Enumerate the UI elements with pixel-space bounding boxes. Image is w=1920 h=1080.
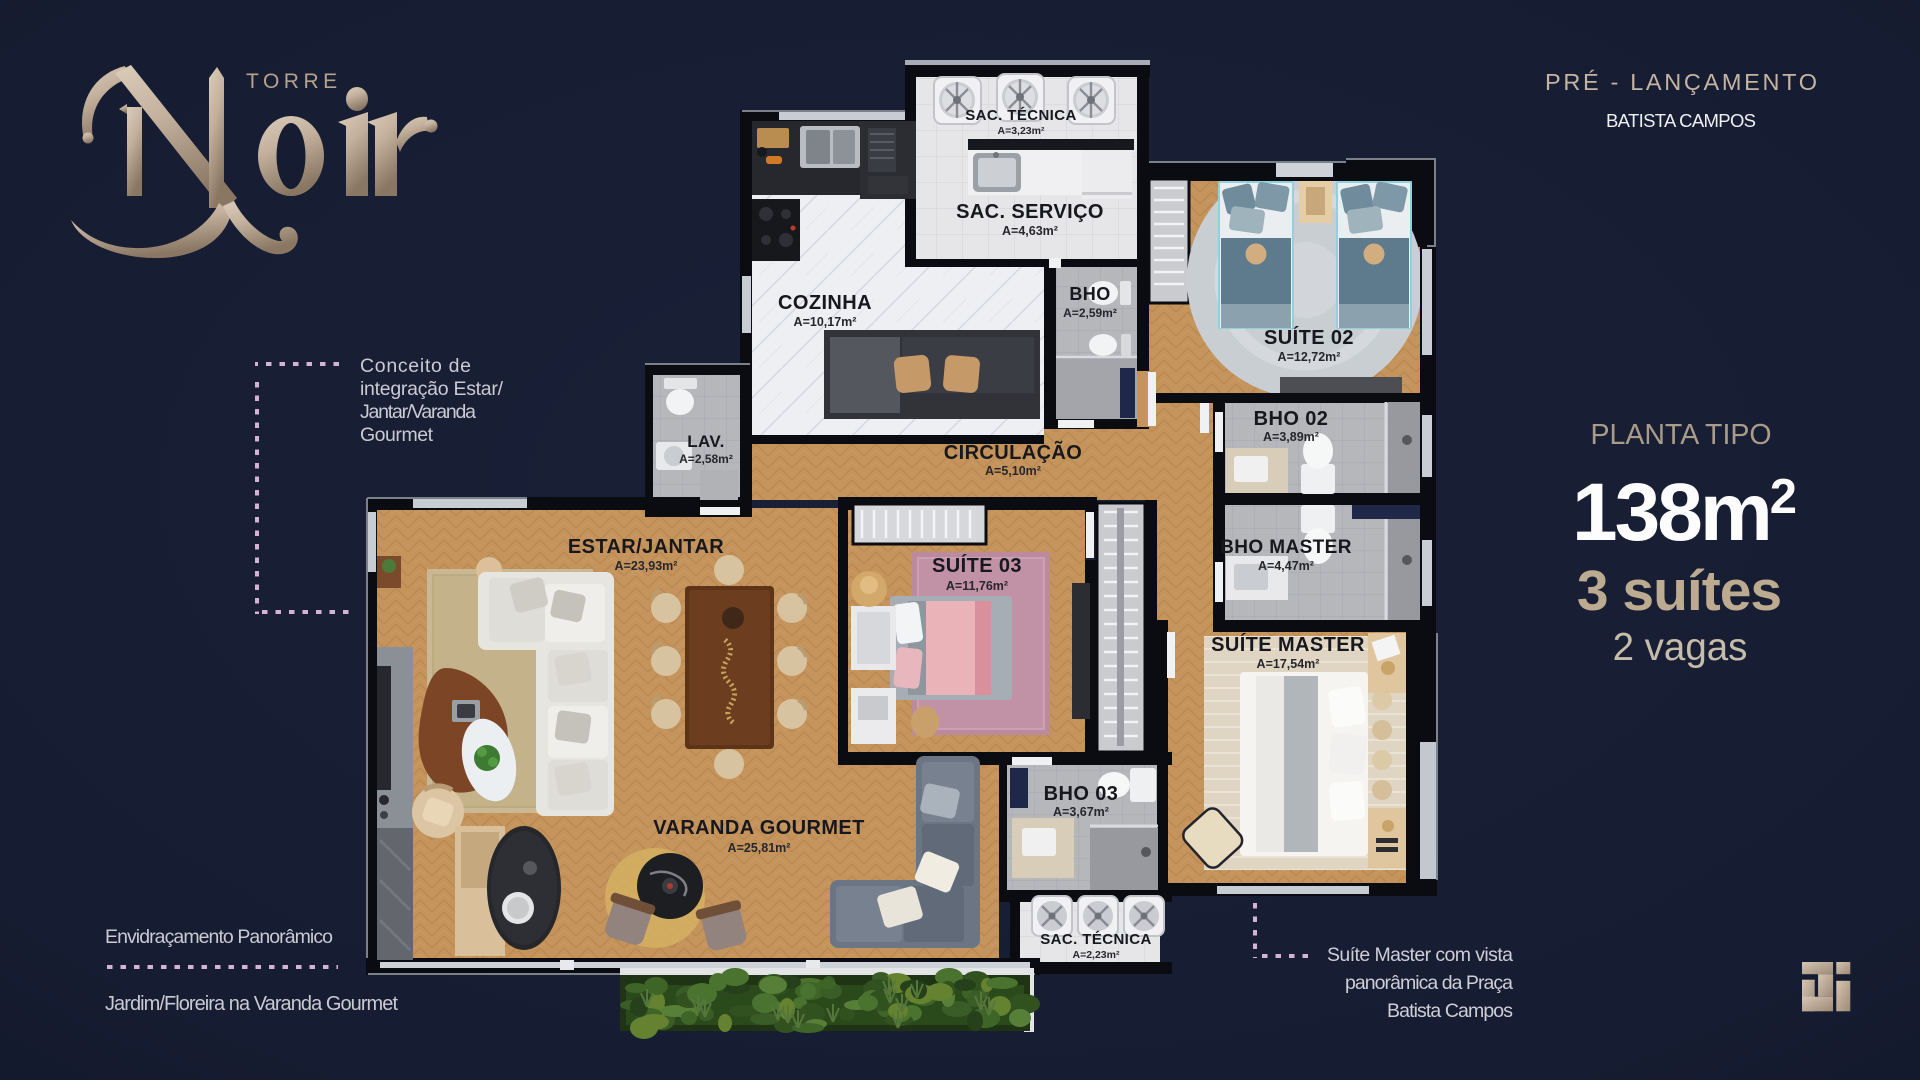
svg-text:A=5,10m²: A=5,10m² bbox=[985, 464, 1041, 478]
svg-text:A=11,76m²: A=11,76m² bbox=[946, 579, 1008, 593]
svg-text:SAC. TÉCNICA: SAC. TÉCNICA bbox=[965, 107, 1076, 124]
svg-text:138m2: 138m2 bbox=[1572, 467, 1796, 558]
svg-text:2 vagas: 2 vagas bbox=[1613, 626, 1748, 669]
svg-text:Envidraçamento Panorâmico: Envidraçamento Panorâmico bbox=[105, 926, 333, 948]
svg-text:A=10,17m²: A=10,17m² bbox=[794, 315, 857, 329]
svg-text:Gourmet: Gourmet bbox=[360, 424, 434, 446]
svg-text:A=17,54m²: A=17,54m² bbox=[1257, 657, 1320, 671]
svg-text:SUÍTE 03: SUÍTE 03 bbox=[932, 554, 1022, 577]
svg-text:SUÍTE 02: SUÍTE 02 bbox=[1264, 326, 1354, 349]
svg-text:A=25,81m²: A=25,81m² bbox=[728, 841, 791, 855]
svg-text:SAC. TÉCNICA: SAC. TÉCNICA bbox=[1040, 931, 1151, 948]
svg-text:A=4,47m²: A=4,47m² bbox=[1258, 559, 1314, 573]
svg-text:Jardim/Floreira na Varanda Gou: Jardim/Floreira na Varanda Gourmet bbox=[105, 993, 398, 1015]
svg-text:3 suítes: 3 suítes bbox=[1577, 559, 1781, 623]
svg-text:VARANDA GOURMET: VARANDA GOURMET bbox=[653, 817, 865, 839]
svg-text:LAV.: LAV. bbox=[687, 432, 725, 451]
svg-text:A=2,59m²: A=2,59m² bbox=[1063, 306, 1117, 320]
svg-text:A=4,63m²: A=4,63m² bbox=[1002, 224, 1058, 238]
svg-text:PRÉ - LANÇAMENTO: PRÉ - LANÇAMENTO bbox=[1545, 69, 1817, 95]
svg-text:Batista Campos: Batista Campos bbox=[1387, 1000, 1513, 1022]
svg-text:BATISTA CAMPOS: BATISTA CAMPOS bbox=[1606, 110, 1756, 131]
svg-text:panorâmica da Praça: panorâmica da Praça bbox=[1345, 972, 1513, 994]
svg-text:Jantar/Varanda: Jantar/Varanda bbox=[360, 401, 476, 423]
svg-text:BHO MASTER: BHO MASTER bbox=[1220, 537, 1352, 558]
svg-text:A=12,72m²: A=12,72m² bbox=[1278, 350, 1341, 364]
svg-text:A=2,58m²: A=2,58m² bbox=[679, 452, 733, 466]
svg-text:CIRCULAÇÃO: CIRCULAÇÃO bbox=[944, 441, 1082, 464]
svg-text:Suíte Master com vista: Suíte Master com vista bbox=[1327, 944, 1513, 966]
svg-text:A=3,67m²: A=3,67m² bbox=[1053, 805, 1109, 819]
svg-text:A=3,23m²: A=3,23m² bbox=[998, 125, 1045, 137]
svg-text:Conceito de: Conceito de bbox=[360, 355, 471, 377]
svg-text:COZINHA: COZINHA bbox=[778, 292, 872, 314]
svg-text:A=23,93m²: A=23,93m² bbox=[615, 559, 678, 573]
svg-text:BHO 02: BHO 02 bbox=[1254, 408, 1329, 430]
svg-text:TORRE: TORRE bbox=[246, 70, 342, 93]
svg-text:BHO 03: BHO 03 bbox=[1044, 783, 1119, 805]
svg-text:SUÍTE MASTER: SUÍTE MASTER bbox=[1211, 633, 1365, 656]
svg-text:ESTAR/JANTAR: ESTAR/JANTAR bbox=[568, 536, 724, 558]
svg-text:SAC. SERVIÇO: SAC. SERVIÇO bbox=[956, 201, 1104, 223]
svg-text:A=3,89m²: A=3,89m² bbox=[1263, 430, 1319, 444]
svg-text:BHO: BHO bbox=[1069, 284, 1110, 304]
svg-text:A=2,23m²: A=2,23m² bbox=[1073, 949, 1120, 961]
svg-text:integração Estar/: integração Estar/ bbox=[360, 378, 504, 400]
svg-text:PLANTA TIPO: PLANTA TIPO bbox=[1590, 419, 1771, 451]
